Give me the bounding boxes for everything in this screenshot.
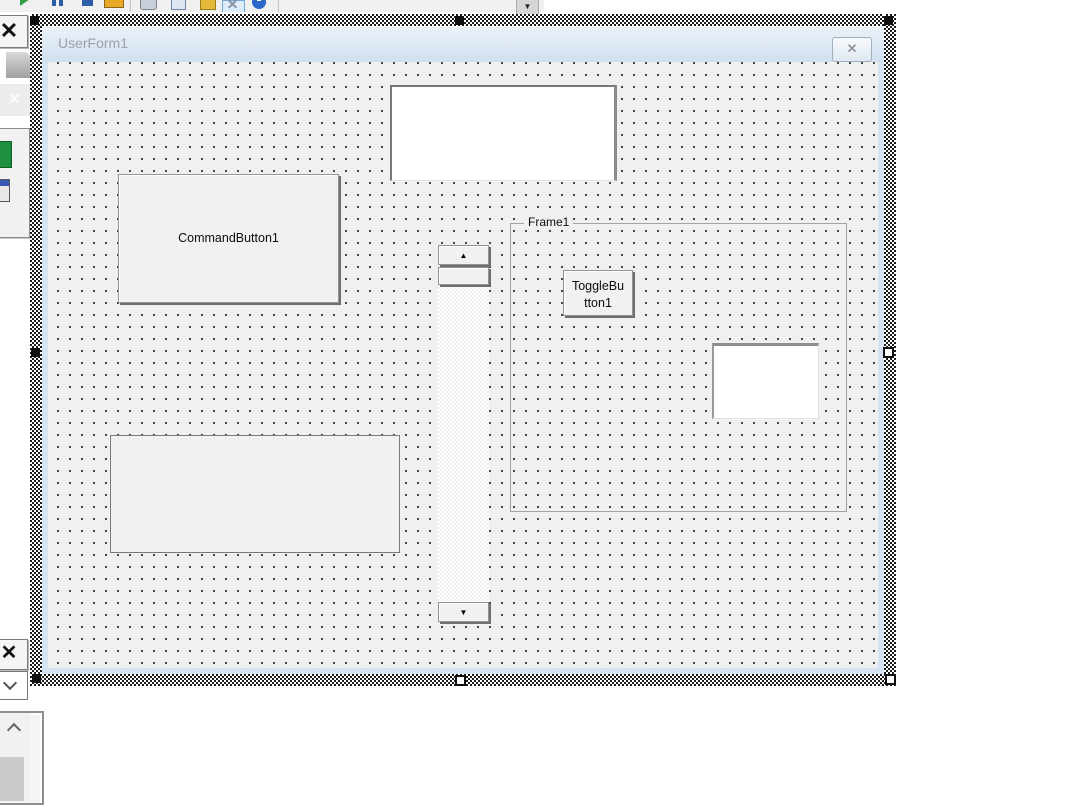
command-button1[interactable]: CommandButton1 <box>118 174 339 303</box>
resize-handle-top-middle[interactable] <box>455 16 464 25</box>
resize-handle-top-right[interactable] <box>884 16 893 25</box>
chevron-down-icon <box>3 676 17 690</box>
chevron-up-icon <box>7 723 21 737</box>
scrollbar-track[interactable] <box>438 287 489 602</box>
toolbar-separator <box>278 0 279 12</box>
resize-handle-bottom-right[interactable] <box>885 674 896 685</box>
break-icon[interactable] <box>52 0 66 10</box>
toolbox-toggle-selected-icon[interactable] <box>222 0 245 12</box>
toolbar-separator <box>130 0 131 12</box>
toggle-button1[interactable]: ToggleBu tton1 <box>563 270 633 316</box>
properties-scrollbar-thumb[interactable] <box>0 757 24 801</box>
toolbox-close-button[interactable]: ✕ <box>0 15 28 48</box>
properties-close-button[interactable]: ✕ <box>0 639 28 670</box>
select-pointer-icon[interactable]: ✕ <box>0 84 31 116</box>
properties-window-icon[interactable] <box>171 0 185 10</box>
toolbox-icon[interactable] <box>200 0 214 10</box>
resize-handle-right-middle[interactable] <box>883 347 894 358</box>
run-icon[interactable] <box>20 0 34 10</box>
scrollbar-down-button[interactable]: ▼ <box>438 602 489 622</box>
properties-object-dropdown[interactable] <box>0 671 28 700</box>
textbox1[interactable] <box>390 85 617 181</box>
scrollbar-thumb[interactable] <box>438 267 489 285</box>
scrollbar-up-button[interactable]: ▲ <box>438 245 489 265</box>
textbox2[interactable] <box>712 343 819 419</box>
reset-icon[interactable] <box>82 0 96 10</box>
resize-handle-left-middle[interactable] <box>31 348 40 357</box>
workbook-icon[interactable] <box>0 141 12 168</box>
resize-handle-bottom-left[interactable] <box>32 674 41 683</box>
toolbox-tab[interactable] <box>6 52 31 78</box>
design-mode-icon[interactable] <box>104 0 118 10</box>
project-explorer-sliver <box>0 128 30 238</box>
resize-handle-top-left[interactable] <box>30 16 39 25</box>
userform-node-icon[interactable] <box>0 179 10 202</box>
resize-handle-bottom-middle[interactable] <box>455 675 466 686</box>
vbe-toolbar <box>0 0 544 12</box>
userform-title: UserForm1 <box>58 35 128 51</box>
userform-close-button[interactable]: ✕ <box>832 37 872 62</box>
frame1-caption: Frame1 <box>524 215 573 229</box>
label1[interactable] <box>110 435 400 553</box>
toggle-button1-label: ToggleBu tton1 <box>564 271 632 312</box>
project-explorer-icon[interactable] <box>140 0 154 10</box>
help-icon[interactable] <box>252 0 266 10</box>
userform-titlebar[interactable]: UserForm1 ✕ <box>42 26 884 62</box>
